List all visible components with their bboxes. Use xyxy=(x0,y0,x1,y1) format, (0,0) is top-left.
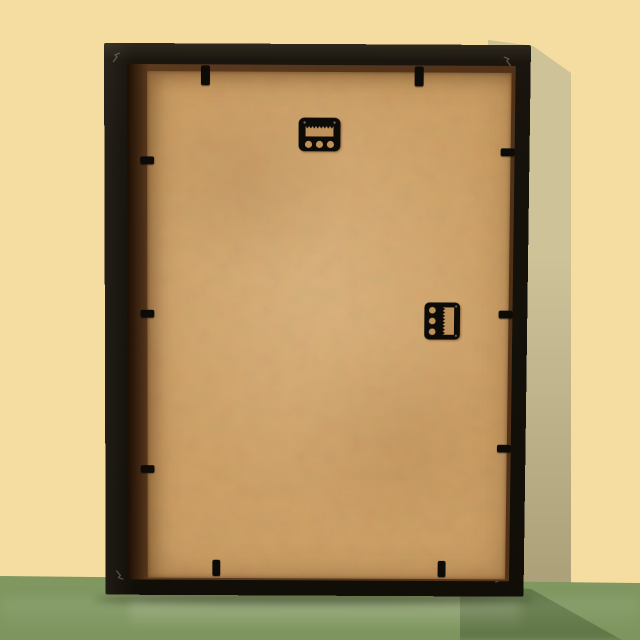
retaining-clip xyxy=(201,65,210,85)
retaining-clip xyxy=(141,465,155,473)
sawtooth-hanger-landscape xyxy=(423,301,461,340)
retaining-clip xyxy=(212,560,220,576)
retaining-clip xyxy=(501,148,515,156)
retaining-clip xyxy=(438,561,446,577)
retaining-clip xyxy=(140,310,154,318)
retaining-clip xyxy=(499,311,513,319)
retaining-clip xyxy=(497,445,511,453)
corner-joint-glint xyxy=(111,51,127,65)
picture-frame xyxy=(104,43,531,597)
retaining-clip xyxy=(415,66,424,86)
scene-frame-back-photo xyxy=(0,0,640,640)
retaining-clip xyxy=(140,156,154,164)
sawtooth-hanger-portrait xyxy=(298,117,342,153)
frame-reflection xyxy=(130,601,520,631)
